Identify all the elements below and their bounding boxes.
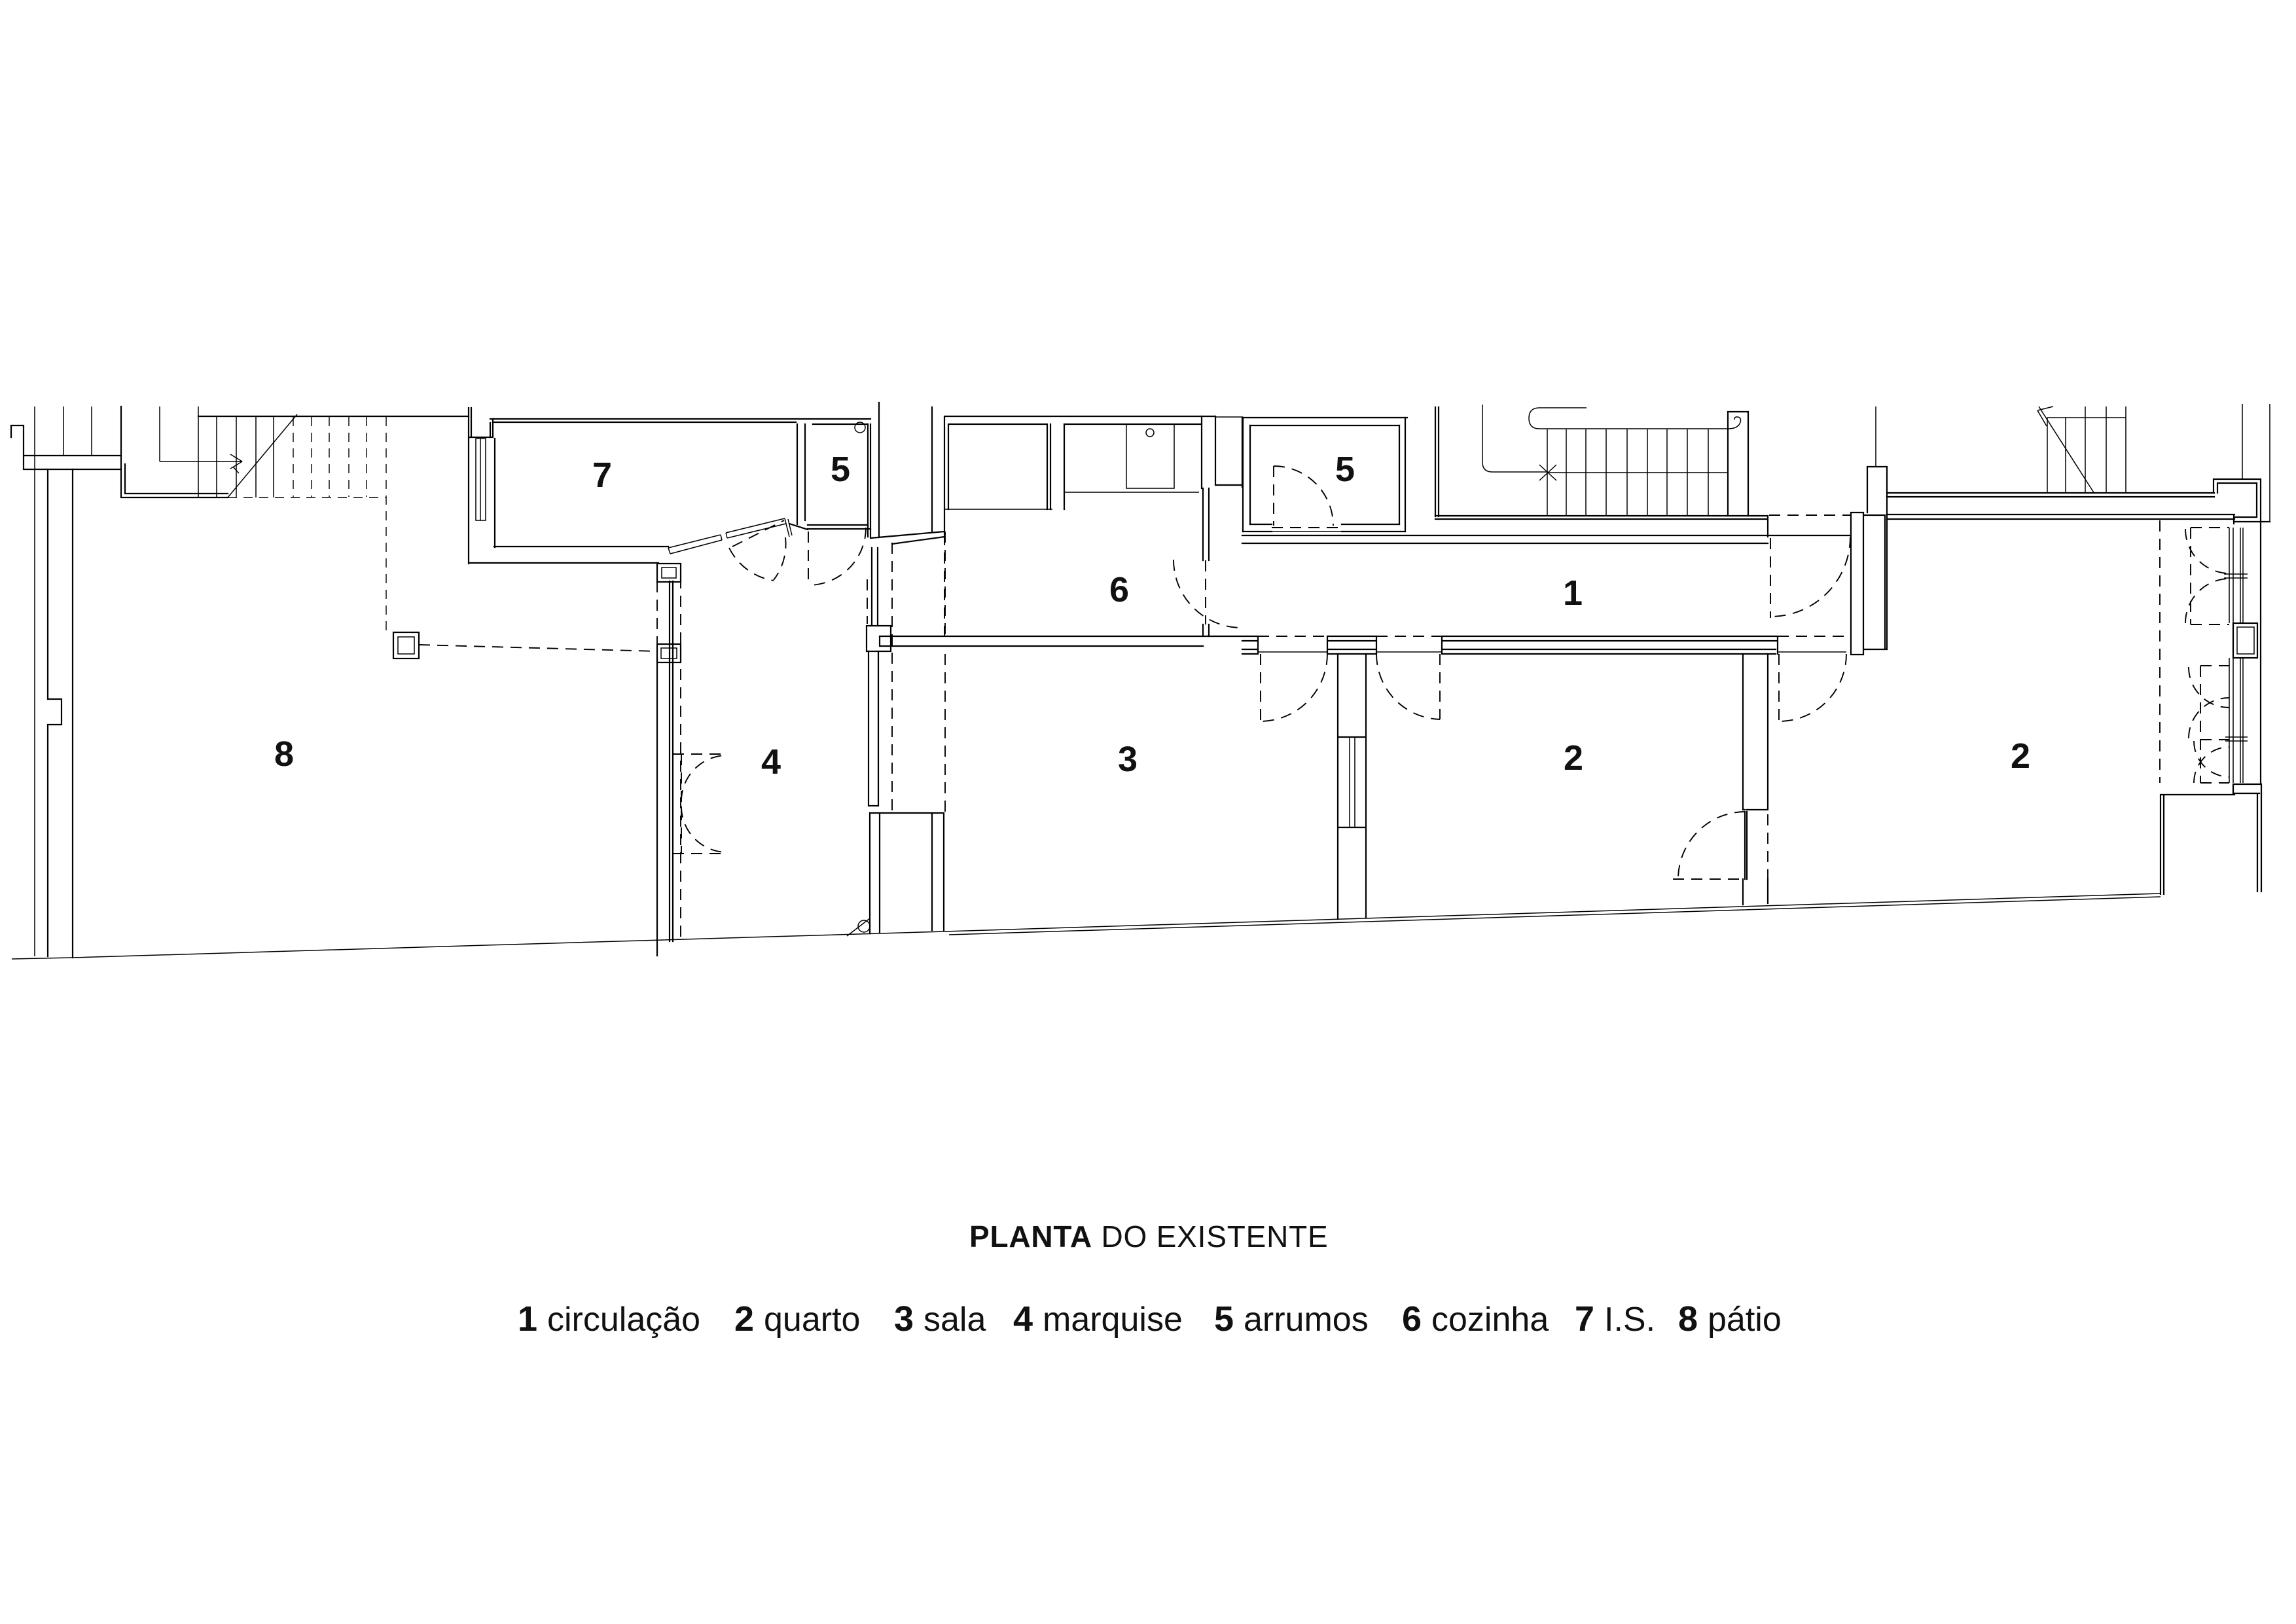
svg-text:3: 3 xyxy=(894,1299,914,1339)
svg-text:quarto: quarto xyxy=(764,1301,860,1339)
svg-text:5: 5 xyxy=(831,450,850,489)
svg-text:circulação: circulação xyxy=(547,1301,700,1339)
svg-text:sala: sala xyxy=(924,1301,986,1339)
svg-text:cozinha: cozinha xyxy=(1431,1301,1549,1339)
svg-text:PLANTA DO EXISTENTE: PLANTA DO EXISTENTE xyxy=(969,1219,1329,1254)
svg-text:7: 7 xyxy=(1575,1299,1594,1339)
svg-text:4: 4 xyxy=(1013,1299,1033,1339)
svg-text:2: 2 xyxy=(1564,738,1583,778)
svg-text:8: 8 xyxy=(274,734,294,774)
svg-text:marquise: marquise xyxy=(1043,1301,1183,1339)
svg-text:8: 8 xyxy=(1678,1299,1698,1339)
svg-text:5: 5 xyxy=(1214,1299,1234,1339)
svg-text:6: 6 xyxy=(1109,570,1129,609)
svg-text:arrumos: arrumos xyxy=(1244,1301,1369,1339)
svg-text:3: 3 xyxy=(1118,740,1138,779)
svg-text:pátio: pátio xyxy=(1708,1301,1782,1339)
svg-text:1: 1 xyxy=(1563,573,1583,613)
svg-text:2: 2 xyxy=(734,1299,754,1339)
svg-text:2: 2 xyxy=(2011,736,2030,776)
svg-text:6: 6 xyxy=(1402,1299,1422,1339)
svg-text:5: 5 xyxy=(1335,450,1355,489)
svg-text:7: 7 xyxy=(592,456,612,495)
svg-text:I.S.: I.S. xyxy=(1604,1301,1655,1339)
svg-text:4: 4 xyxy=(761,742,781,782)
svg-text:1: 1 xyxy=(518,1299,537,1339)
